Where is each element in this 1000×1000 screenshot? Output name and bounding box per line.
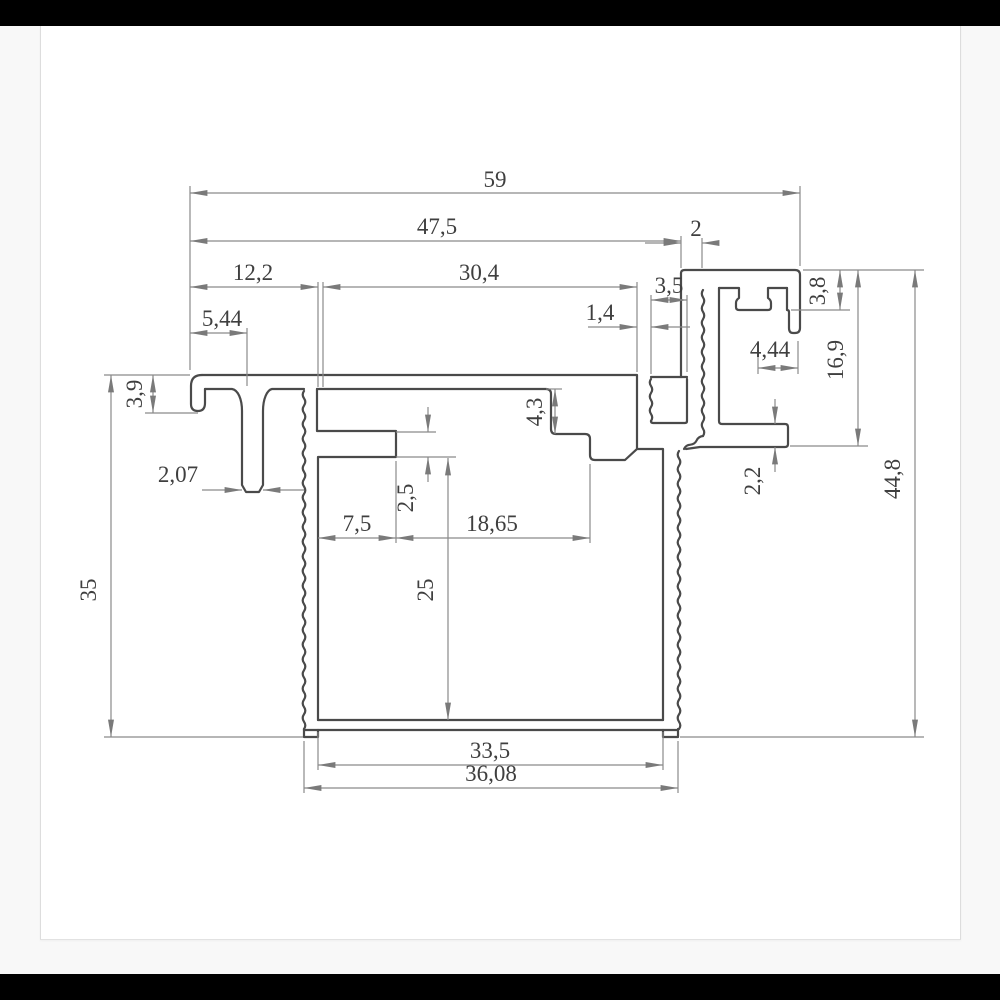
- dim-label-25: 25: [413, 579, 438, 602]
- dim-label-33-5: 33,5: [470, 738, 510, 763]
- right-underside-tabs: [719, 288, 787, 310]
- dim-label-18-65: 18,65: [466, 511, 518, 536]
- dim-label-4-3: 4,3: [522, 398, 547, 427]
- dim-label-12-2: 12,2: [233, 260, 273, 285]
- floor: [304, 720, 678, 730]
- dim-label-47-5: 47,5: [417, 214, 457, 239]
- dim-label-2: 2: [690, 216, 702, 241]
- gap-leg: [651, 377, 687, 423]
- profile-drawing: 59 47,5 2 12,2 30,4 5,44 3,5 1,4 3,9 2,0…: [0, 0, 1000, 1000]
- dim-label-3-8: 3,8: [805, 277, 830, 306]
- dim-label-2-07: 2,07: [158, 462, 198, 487]
- dim-label-4-44: 4,44: [750, 337, 791, 362]
- flange-underside-left: [205, 389, 304, 492]
- dim-label-5-44: 5,44: [202, 306, 243, 331]
- flange-top: [202, 375, 637, 449]
- gap-leg-serrated: [650, 379, 652, 421]
- dimension-lines: [111, 193, 915, 788]
- left-wall-inner: [317, 389, 396, 720]
- cavity-ceiling: [317, 389, 663, 720]
- dim-label-1-4: 1,4: [586, 300, 615, 325]
- dim-label-44-8: 44,8: [880, 459, 905, 499]
- dim-label-7-5: 7,5: [343, 511, 372, 536]
- dim-label-59: 59: [484, 167, 507, 192]
- dim-label-2-2: 2,2: [740, 467, 765, 496]
- left-lip: [191, 375, 205, 411]
- dim-label-3-9: 3,9: [122, 380, 147, 409]
- dim-label-30-4: 30,4: [459, 260, 500, 285]
- dim-label-35: 35: [76, 579, 101, 602]
- dimension-labels: 59 47,5 2 12,2 30,4 5,44 3,5 1,4 3,9 2,0…: [76, 167, 905, 786]
- profile-outline: [191, 270, 800, 737]
- right-wall-serrated: [678, 451, 681, 729]
- dim-label-16-9: 16,9: [823, 340, 848, 380]
- right-inner-wall-serrated: [702, 290, 704, 436]
- dim-label-3-5: 3,5: [655, 273, 684, 298]
- dim-label-2-5: 2,5: [393, 484, 418, 513]
- left-wall-serrated: [303, 391, 306, 729]
- dim-label-36-08: 36,08: [465, 761, 517, 786]
- right-top-flange: [681, 270, 800, 333]
